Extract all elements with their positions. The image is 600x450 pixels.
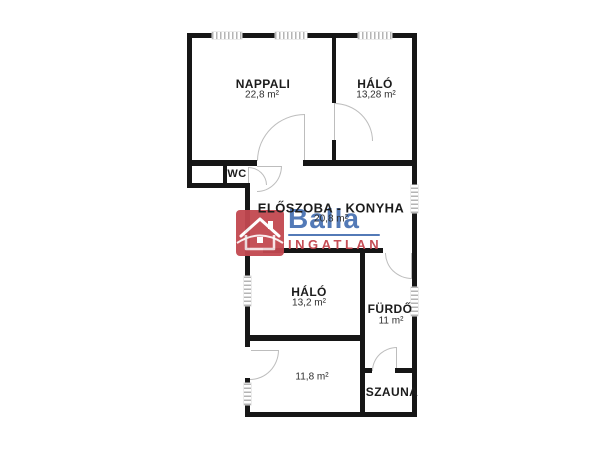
wall-furdo-left bbox=[360, 248, 365, 417]
wall-szauna-top-right bbox=[395, 368, 417, 373]
room-label-szauna: SZAUNA bbox=[366, 385, 418, 399]
watermark-subtitle-text: INGATLAN bbox=[288, 237, 382, 252]
window-szoba bbox=[244, 383, 251, 405]
door-opening-bejarat bbox=[244, 347, 251, 378]
window-nappali-1 bbox=[212, 32, 242, 39]
watermark-swoosh bbox=[288, 234, 380, 236]
door-arc-nappali bbox=[257, 114, 305, 161]
window-halo-also bbox=[244, 276, 251, 306]
door-arc-furdo bbox=[385, 253, 412, 279]
wall-right bbox=[412, 33, 417, 417]
wall-bottom bbox=[245, 412, 417, 417]
wall-divider-stub bbox=[332, 140, 336, 166]
wall-wc-divider bbox=[223, 166, 227, 183]
room-label-wc: WC bbox=[227, 168, 246, 180]
door-arc-szauna bbox=[372, 347, 397, 371]
wall-divider-nappali-halo bbox=[332, 38, 336, 103]
room-label-furdo: FÜRDŐ bbox=[368, 302, 413, 316]
room-area-furdo: 11 m² bbox=[379, 316, 404, 327]
room-area-eloszoba-konyha: 20,8 m² bbox=[314, 214, 348, 225]
wall-mid-left bbox=[187, 160, 257, 166]
door-arc-bejarat bbox=[250, 350, 279, 380]
room-area-halo-also: 13,2 m² bbox=[292, 298, 326, 309]
room-area-halo-felso: 13,28 m² bbox=[356, 90, 395, 101]
wall-mid-right bbox=[303, 160, 417, 166]
wall-divider-halo-szoba bbox=[250, 335, 365, 341]
wall-szauna-top-left bbox=[365, 368, 372, 373]
floor-plan: NAPPALI 22,8 m² HÁLÓ 13,28 m² WC ELŐSZOB… bbox=[0, 0, 600, 450]
door-arc-halo-felso bbox=[334, 103, 373, 141]
room-area-nappali: 22,8 m² bbox=[245, 90, 279, 101]
wall-wc-bottom bbox=[187, 183, 250, 188]
house-icon bbox=[236, 210, 284, 256]
window-eloszoba bbox=[411, 185, 418, 213]
room-area-szoba: 11,8 m² bbox=[295, 372, 328, 383]
window-halo-felso bbox=[358, 32, 392, 39]
window-nappali-2 bbox=[275, 32, 307, 39]
